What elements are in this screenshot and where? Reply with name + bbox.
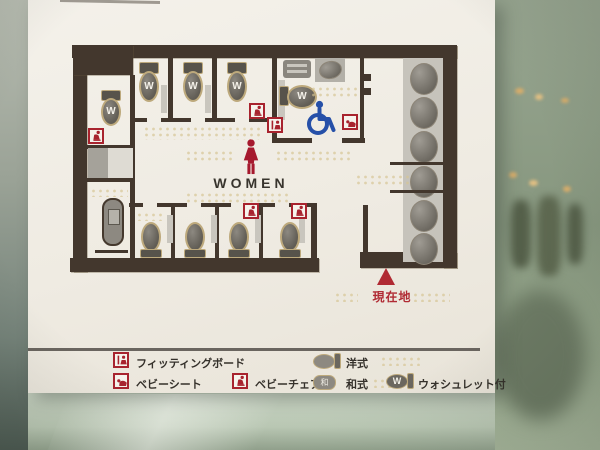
wall-segment — [205, 118, 235, 122]
changing-table-pad — [287, 64, 307, 67]
braille-dots — [185, 150, 235, 162]
toilet-western — [140, 222, 162, 258]
legend-label-washlet: ウォシュレット付 — [418, 376, 506, 392]
braille-dots — [143, 126, 261, 140]
wall-segment — [73, 45, 133, 75]
stall-divider — [168, 58, 173, 122]
toilet-western-washlet: W — [139, 62, 159, 102]
washlet-toilet-icon: W — [386, 374, 408, 389]
baby-chair-icon — [88, 128, 104, 144]
squat-mark: 和 — [321, 379, 329, 387]
door-hinge-mark — [364, 74, 371, 81]
background-glass-reflection — [495, 0, 600, 450]
reflection-figure — [537, 196, 561, 276]
braille-dots — [90, 188, 128, 197]
utility-closet — [108, 148, 133, 178]
stall-door-panel — [255, 215, 261, 243]
braille-dots — [275, 150, 353, 163]
baby-chair-icon — [243, 203, 259, 219]
baby-sheet-icon — [342, 114, 358, 130]
counter-partition — [390, 190, 443, 193]
fitting-board-icon — [267, 117, 283, 133]
wall-segment — [73, 178, 135, 182]
reflection-light-spot — [529, 180, 538, 186]
stall-door-panel — [161, 85, 167, 113]
stall-door-panel — [205, 85, 211, 113]
changing-table — [283, 60, 311, 78]
western-toilet-icon — [334, 353, 341, 369]
toilet-western — [184, 222, 206, 258]
legend-divider-line — [28, 348, 480, 351]
sink-basin — [410, 233, 438, 265]
squat-toilet-pan — [108, 209, 120, 225]
accessible-stall-wall — [342, 138, 365, 143]
glass-reflection-streak — [48, 394, 368, 450]
baby-chair-icon — [232, 373, 248, 389]
washlet-mark: W — [232, 82, 241, 92]
washlet-mark: W — [393, 377, 402, 386]
wall-segment — [70, 258, 319, 272]
wall-segment — [443, 45, 457, 268]
braille-dots — [310, 86, 360, 97]
legend-label-baby-sheet: ベビーシート — [136, 376, 202, 392]
entrance-partition-wall — [363, 205, 368, 258]
sink-basin — [410, 97, 438, 129]
braille-dots — [334, 292, 358, 302]
sink-basin — [410, 131, 438, 163]
stall-divider — [212, 58, 217, 122]
reflection-figure — [567, 204, 583, 264]
accessible-stall-wall — [272, 138, 312, 143]
legend-label-western: 洋式 — [346, 355, 368, 371]
photo-of-restroom-map-sign: W W W W W — [0, 0, 600, 450]
wall-segment — [133, 118, 147, 122]
utility-closet — [88, 148, 108, 178]
current-location-marker — [377, 268, 395, 285]
toilet-western-washlet: W — [101, 90, 121, 128]
braille-dots — [355, 174, 413, 186]
background-wall-left — [0, 0, 30, 450]
stall-door-panel — [211, 215, 217, 243]
stall-door-line — [95, 250, 128, 253]
washlet-toilet-icon — [407, 373, 414, 389]
toilet-western — [279, 222, 301, 258]
reflection-dark-patch — [495, 290, 585, 420]
legend-label-baby-chair: ベビーチェア — [255, 376, 321, 392]
counter-partition — [390, 162, 443, 165]
woman-icon — [240, 139, 262, 175]
background-glass-below-sign — [28, 392, 495, 450]
braille-dots — [412, 292, 450, 302]
women-title: WOMEN — [191, 175, 311, 191]
baby-chair-icon — [249, 103, 265, 119]
toilet-squat — [102, 198, 124, 246]
wall-segment — [73, 45, 87, 272]
reflection-light-spot — [561, 98, 569, 103]
toilet-western-washlet: W — [183, 62, 203, 102]
toilet-western-washlet: W — [227, 62, 247, 102]
reflection-light-spot — [509, 172, 517, 178]
baby-sheet-icon — [113, 373, 129, 389]
washlet-mark: W — [106, 107, 115, 117]
braille-dots — [185, 192, 290, 203]
toilet-western — [228, 222, 250, 258]
sink-basin — [410, 200, 438, 232]
squat-toilet-icon: 和 — [313, 375, 336, 390]
legend-label-squat: 和式 — [346, 376, 368, 392]
stall-door-panel — [167, 215, 173, 243]
fitting-board-icon — [113, 352, 129, 368]
baby-chair-icon — [291, 203, 307, 219]
reflection-figure — [511, 200, 531, 268]
accessible-stall-wall — [360, 58, 364, 138]
wall-segment — [161, 118, 191, 122]
wall-segment — [129, 203, 143, 207]
reflection-light-spot — [535, 94, 543, 100]
reflection-light-spot — [563, 186, 571, 192]
wheelchair-icon — [305, 100, 337, 138]
sink-basin — [410, 63, 438, 95]
legend-label-fitting-board: フィッティングボード — [136, 355, 245, 371]
washlet-mark: W — [144, 82, 153, 92]
door-hinge-mark — [364, 88, 371, 95]
sign-top-edge — [60, 0, 160, 4]
reflection-light-spot — [515, 88, 524, 94]
restroom-map-sign: W W W W W — [28, 0, 495, 393]
braille-dots — [380, 356, 420, 366]
washlet-mark: W — [188, 82, 197, 92]
changing-table-pad — [287, 70, 307, 73]
braille-dots — [136, 212, 162, 221]
wall-segment — [311, 203, 317, 258]
sink-basin — [410, 166, 438, 198]
western-toilet-icon — [313, 354, 335, 369]
